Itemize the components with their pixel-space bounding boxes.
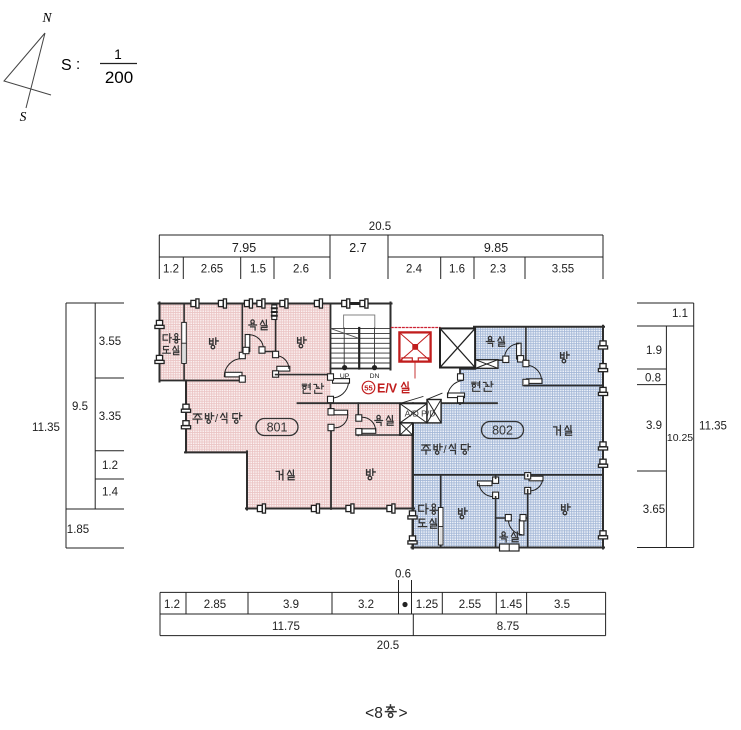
svg-text:1.5: 1.5 (250, 264, 266, 276)
svg-text:20.5: 20.5 (377, 640, 399, 652)
svg-text:S: S (20, 109, 27, 124)
svg-text:DN: DN (370, 373, 380, 380)
svg-text:20.5: 20.5 (369, 221, 391, 233)
svg-text:3.5: 3.5 (554, 599, 570, 611)
svg-text:9.85: 9.85 (484, 241, 508, 255)
svg-text:200: 200 (105, 68, 133, 87)
svg-text:1.45: 1.45 (500, 599, 522, 611)
svg-text:1.6: 1.6 (449, 264, 465, 276)
svg-text:0.6: 0.6 (395, 569, 411, 581)
svg-text:2.6: 2.6 (293, 264, 309, 276)
svg-text:7.95: 7.95 (232, 241, 256, 255)
svg-text:3.2: 3.2 (358, 599, 374, 611)
svg-text:1.9: 1.9 (646, 345, 662, 357)
svg-text:2.3: 2.3 (490, 264, 506, 276)
svg-text:>: > (398, 705, 407, 722)
svg-text:11.35: 11.35 (699, 421, 727, 433)
svg-text:9.5: 9.5 (72, 401, 88, 413)
svg-text:2.65: 2.65 (201, 264, 223, 276)
svg-text:1: 1 (114, 47, 122, 62)
svg-text:3.9: 3.9 (646, 420, 662, 432)
svg-text:3.65: 3.65 (643, 504, 665, 516)
svg-text:<8: <8 (365, 705, 383, 722)
svg-text:10.25: 10.25 (667, 432, 693, 444)
svg-text:3.55: 3.55 (99, 336, 121, 348)
svg-text:802: 802 (492, 424, 513, 438)
svg-text:1.25: 1.25 (416, 599, 438, 611)
svg-text:801: 801 (267, 421, 288, 435)
svg-text:UP: UP (340, 373, 350, 380)
svg-text:3.9: 3.9 (283, 599, 299, 611)
svg-text:0.8: 0.8 (645, 373, 661, 385)
svg-text:11.75: 11.75 (272, 621, 300, 633)
svg-text:3.55: 3.55 (552, 264, 574, 276)
svg-text:1.2: 1.2 (102, 460, 118, 472)
svg-text:2.7: 2.7 (349, 241, 366, 255)
svg-text:A/D P/D: A/D P/D (405, 409, 436, 419)
svg-text:1.4: 1.4 (102, 487, 119, 499)
svg-text:2.85: 2.85 (204, 599, 226, 611)
svg-text:2.4: 2.4 (406, 264, 423, 276)
svg-text:N: N (41, 10, 52, 25)
svg-text:E/V: E/V (377, 381, 398, 395)
svg-text:11.35: 11.35 (32, 422, 60, 434)
svg-text:1.2: 1.2 (163, 264, 179, 276)
svg-text:3.35: 3.35 (99, 411, 121, 423)
svg-text:S: S (61, 57, 72, 74)
svg-text:2.55: 2.55 (459, 599, 481, 611)
svg-text:1.2: 1.2 (164, 599, 180, 611)
svg-text:1.85: 1.85 (67, 524, 89, 536)
svg-text::: : (76, 56, 80, 73)
svg-text:1.1: 1.1 (672, 308, 688, 320)
svg-text:55: 55 (364, 383, 373, 392)
svg-text:8.75: 8.75 (497, 621, 519, 633)
